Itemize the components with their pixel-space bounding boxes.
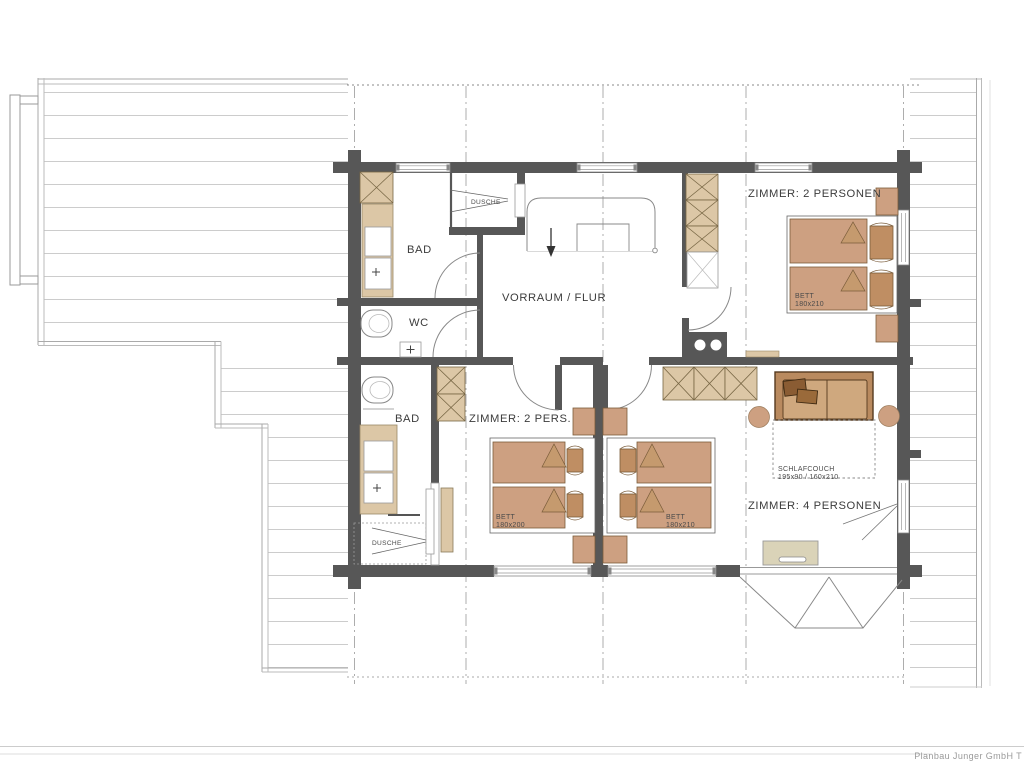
- wall-corner-stub: [910, 565, 922, 577]
- window-bay: [740, 566, 897, 575]
- stair-direction-arrow: [547, 228, 556, 257]
- bed: [790, 219, 893, 263]
- label-vorraum: VORRAUM / FLUR: [502, 292, 606, 304]
- wardrobe: [686, 174, 718, 252]
- sofa-bed: [775, 372, 873, 420]
- sink-icon: [364, 441, 393, 471]
- floorplan-drawing: BAD DUSCHE WC VORRAUM / FLUR BAD DUSCHE …: [0, 0, 1024, 768]
- nightstand: [573, 408, 595, 435]
- window-right-2: [898, 480, 909, 533]
- window-top-2: [577, 163, 637, 172]
- wall-bottom-left: [333, 565, 494, 577]
- wall-middle-left: [337, 357, 513, 365]
- window-top-3: [755, 163, 812, 172]
- nightstand: [573, 536, 595, 563]
- wall-shower-bottom: [449, 227, 525, 235]
- wall-shelf: [746, 351, 779, 357]
- label-zimmer-4-personen: ZIMMER: 4 PERSONEN: [748, 500, 881, 512]
- nightstand: [603, 536, 627, 563]
- window-right-1: [898, 210, 909, 265]
- label-bett-small-1: BETT: [496, 514, 516, 521]
- door-arc-bedroom-top: [688, 287, 731, 330]
- kitchenette-arm: [682, 318, 689, 332]
- label-zimmer-2-personen: ZIMMER: 2 PERSONEN: [748, 188, 881, 200]
- label-bett-small-2: 180x200: [496, 522, 525, 529]
- title-block: Planbau Junger GmbH T: [0, 747, 1024, 762]
- bedroom-large-furniture: [603, 367, 900, 565]
- luggage-rack: [687, 252, 718, 288]
- label-wc: WC: [409, 317, 429, 329]
- wall-corridor-stub-upper: [477, 235, 483, 298]
- sink-icon: [365, 258, 391, 289]
- wall-middle-right: [649, 357, 913, 365]
- side-table: [879, 406, 900, 427]
- shower-door: [515, 184, 525, 217]
- label-bad-upper: BAD: [407, 244, 432, 256]
- nightstand: [876, 315, 898, 342]
- toilet-icon: [361, 310, 392, 337]
- window-bottom-1: [494, 566, 591, 576]
- door-arc-bedroom-large: [607, 365, 652, 410]
- bedroom-small-furniture: [437, 367, 595, 563]
- label-dusche-upper: DUSCHE: [471, 199, 501, 206]
- label-bad-lower: BAD: [395, 413, 420, 425]
- window-bottom-2: [608, 566, 716, 576]
- footer-credit: Planbau Junger GmbH T: [914, 751, 1022, 761]
- sink-icon: [365, 227, 391, 256]
- door-arc-bedroom-small: [514, 365, 559, 410]
- floorplan-page: BAD DUSCHE WC VORRAUM / FLUR BAD DUSCHE …: [0, 0, 1024, 768]
- wardrobe: [437, 367, 465, 421]
- terrace-railing: [10, 95, 38, 285]
- cushion: [797, 389, 818, 404]
- nightstand: [603, 408, 627, 435]
- shower-glass: [426, 489, 434, 554]
- wall-middle-center: [560, 357, 603, 365]
- wardrobe-cell: [360, 172, 393, 203]
- label-dusche-lower: DUSCHE: [372, 540, 402, 547]
- label-bett-large-1: BETT: [666, 514, 686, 521]
- label-schlafcouch-2: 195x90 / 160x210: [778, 474, 838, 481]
- label-schlafcouch-1: SCHLAFCOUCH: [778, 466, 835, 473]
- chest: [763, 541, 818, 565]
- label-bett-top-1: BETT: [795, 293, 815, 300]
- toilet-icon: [362, 377, 393, 403]
- door-arc-wc: [433, 310, 480, 357]
- sliding-door-leaf: [441, 488, 453, 552]
- door-leaf-bedroom-large: [601, 365, 608, 410]
- terrace-left: [38, 78, 348, 672]
- log-stub: [910, 299, 921, 307]
- wardrobe: [663, 367, 757, 400]
- label-zimmer-2-pers: ZIMMER: 2 PERS.: [469, 413, 571, 425]
- log-stub: [910, 450, 921, 458]
- wall-bad-wc: [337, 298, 483, 306]
- dormer-roof: [740, 577, 902, 628]
- staircase: [527, 198, 657, 257]
- label-bett-large-2: 180x210: [666, 522, 695, 529]
- wall-corridor-stub-lower: [477, 306, 483, 357]
- label-bett-top-2: 180x210: [795, 301, 824, 308]
- side-table: [749, 407, 770, 428]
- door-leaf-bedroom-small: [555, 365, 562, 410]
- wall-bottom-right: [716, 565, 740, 577]
- window-top-1: [396, 163, 450, 172]
- door-arc-bad-upper: [435, 253, 480, 298]
